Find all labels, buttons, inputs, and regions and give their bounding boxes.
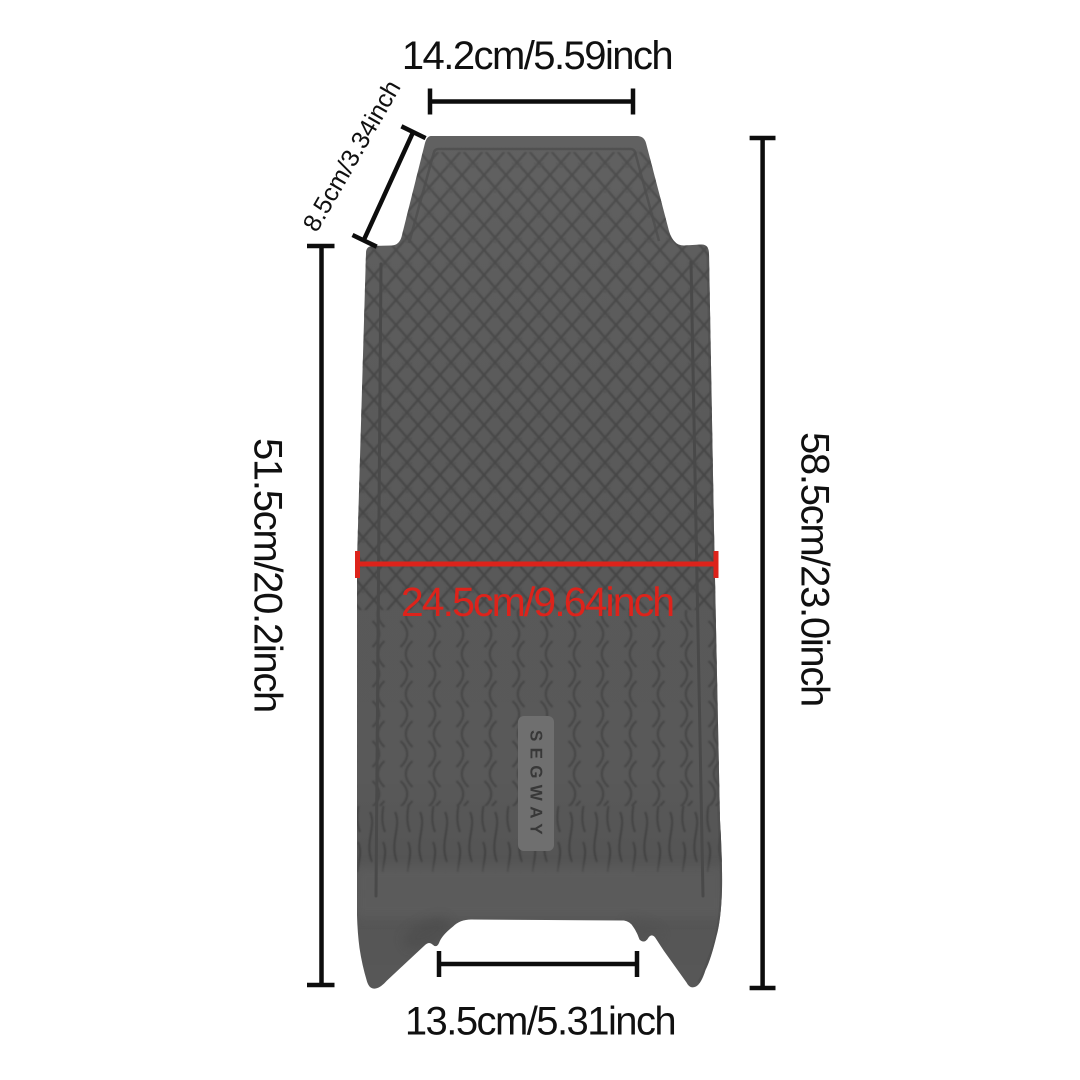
svg-text:24.5cm/9.64inch: 24.5cm/9.64inch <box>401 579 673 625</box>
svg-text:13.5cm/5.31inch: 13.5cm/5.31inch <box>405 1000 675 1044</box>
svg-text:14.2cm/5.59inch: 14.2cm/5.59inch <box>402 34 672 78</box>
svg-text:SEGWAY: SEGWAY <box>527 730 546 841</box>
svg-text:58.5cm/23.0inch: 58.5cm/23.0inch <box>793 432 837 706</box>
svg-text:51.5cm/20.2inch: 51.5cm/20.2inch <box>246 438 290 712</box>
